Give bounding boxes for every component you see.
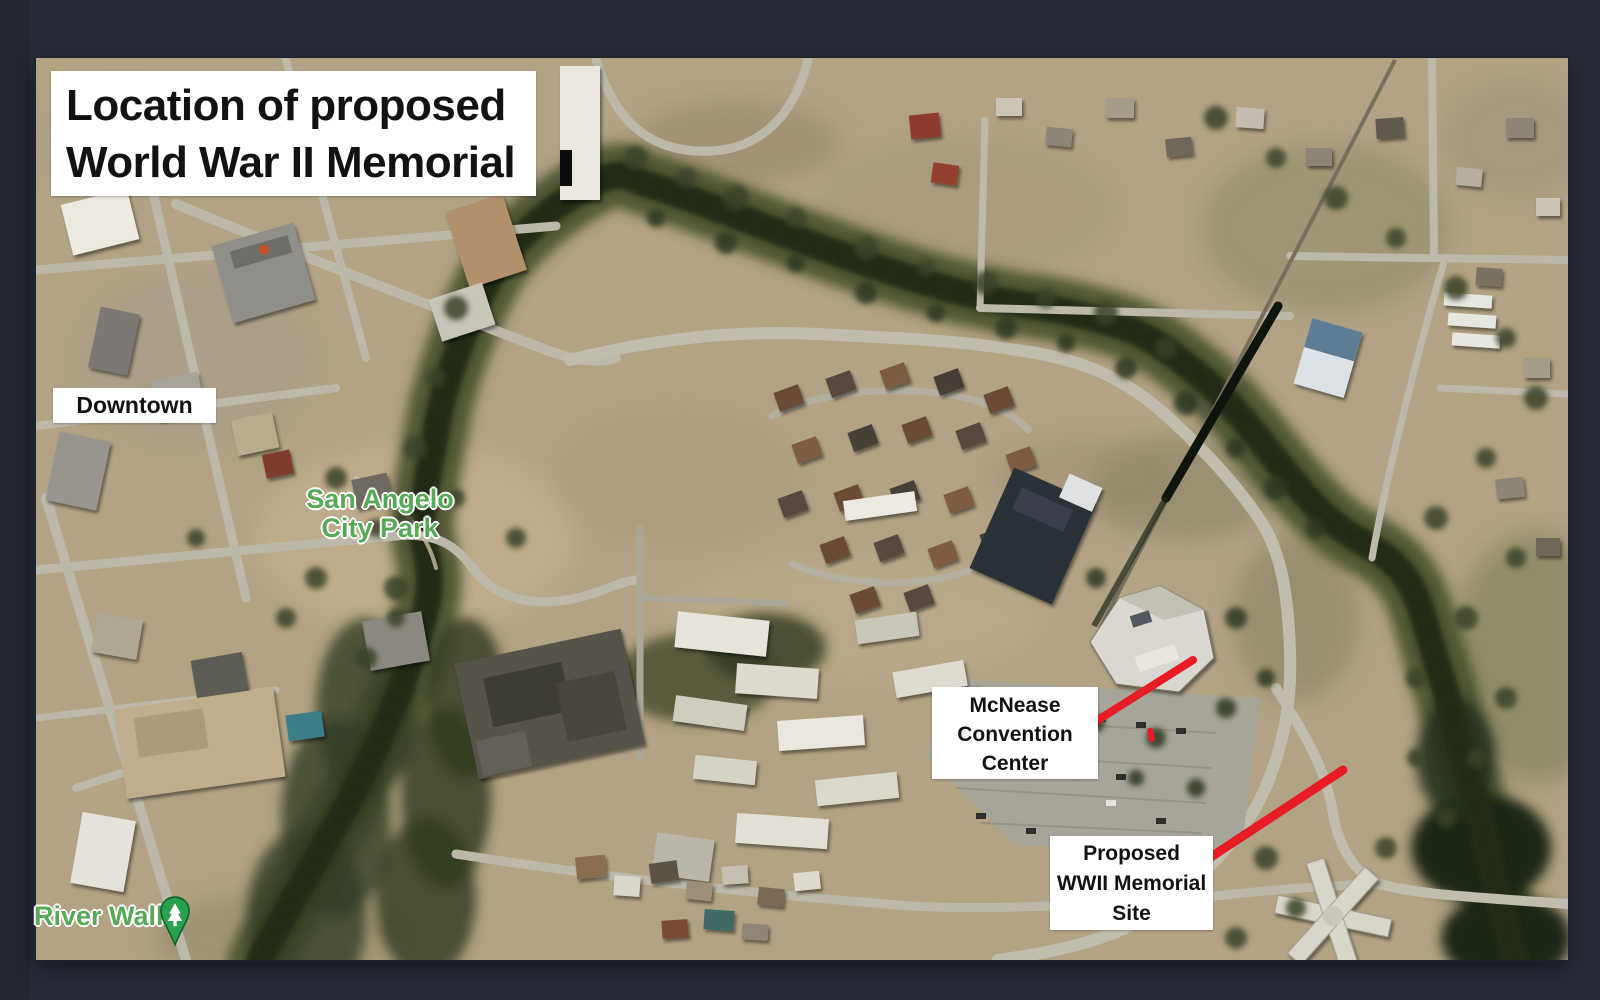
city-park-label: San Angelo City Park — [290, 485, 470, 543]
map-title-line2: World War II Memorial — [66, 134, 536, 191]
city-park-label-line2: City Park — [290, 514, 470, 543]
left-frame-strip — [0, 0, 30, 1000]
convention-callout-line1: McNease — [932, 691, 1098, 720]
downtown-label: Downtown — [53, 388, 216, 423]
memorial-callout-line2: WWII Memorial — [1050, 869, 1213, 899]
map-title: Location of proposed World War II Memori… — [51, 71, 536, 196]
city-park-label-line1: San Angelo — [290, 485, 470, 514]
memorial-site-callout: Proposed WWII Memorial Site — [1050, 836, 1213, 930]
convention-callout-line3: Center — [932, 749, 1098, 778]
map-title-line1: Location of proposed — [66, 77, 536, 134]
park-pin-icon — [159, 896, 191, 948]
convention-center-callout: McNease Convention Center — [932, 687, 1098, 779]
memorial-callout-line1: Proposed — [1050, 839, 1213, 869]
convention-callout-line2: Convention — [932, 720, 1098, 749]
slide-stage: Location of proposed World War II Memori… — [0, 0, 1600, 1000]
memorial-callout-line3: Site — [1050, 899, 1213, 929]
